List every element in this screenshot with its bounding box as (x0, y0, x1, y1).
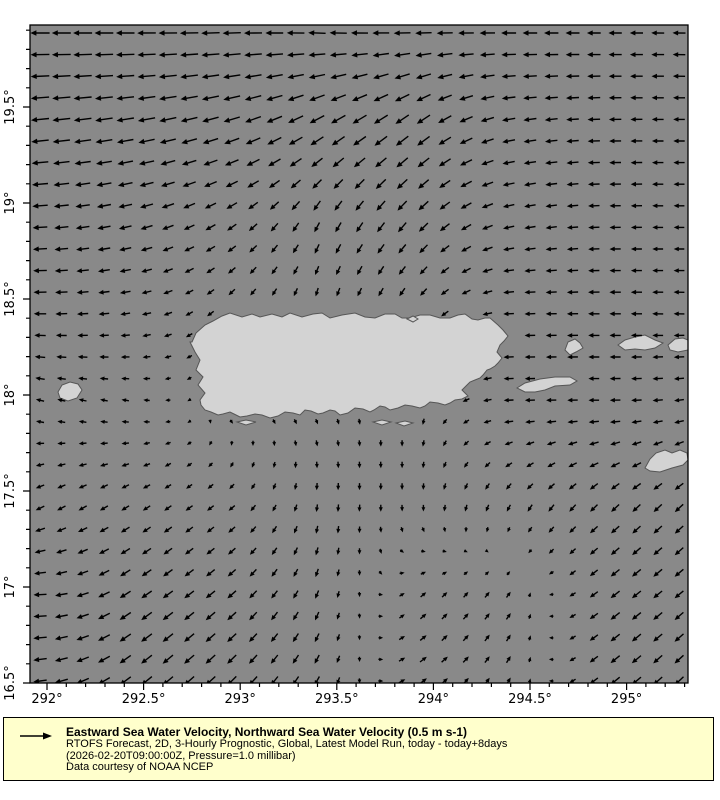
forecast-map-page: 292°292.5°293°293.5°294°294.5°295°16.5°1… (0, 0, 720, 800)
y-tick-label: 18° (3, 383, 18, 406)
x-tick-label: 294.5° (508, 692, 552, 707)
x-tick-label: 295° (611, 692, 642, 707)
reference-arrow-icon (18, 730, 54, 742)
y-tick-label: 17.5° (3, 473, 18, 508)
y-tick-label: 19° (3, 191, 18, 214)
legend-dataset-line: RTOFS Forecast, 2D, 3-Hourly Prognostic,… (66, 739, 507, 751)
legend-credit-line: Data courtesy of NOAA NCEP (66, 762, 507, 774)
y-tick-label: 19.5° (3, 89, 18, 124)
x-tick-label: 293° (225, 692, 256, 707)
legend-box: Eastward Sea Water Velocity, Northward S… (3, 717, 714, 781)
y-tick-label: 16.5° (3, 665, 18, 700)
x-axis-tick-labels: 292°292.5°293°293.5°294°294.5°295° (31, 692, 642, 707)
x-tick-label: 292.5° (122, 692, 166, 707)
velocity-quiver-map: 292°292.5°293°293.5°294°294.5°295°16.5°1… (0, 0, 720, 712)
x-tick-label: 294° (418, 692, 449, 707)
x-tick-label: 292° (31, 692, 62, 707)
legend-text: Eastward Sea Water Velocity, Northward S… (66, 726, 507, 774)
x-tick-label: 293.5° (315, 692, 359, 707)
y-axis-tick-labels: 16.5°17°17.5°18°18.5°19°19.5° (3, 89, 18, 700)
y-tick-label: 18.5° (3, 281, 18, 316)
y-tick-label: 17° (3, 575, 18, 598)
